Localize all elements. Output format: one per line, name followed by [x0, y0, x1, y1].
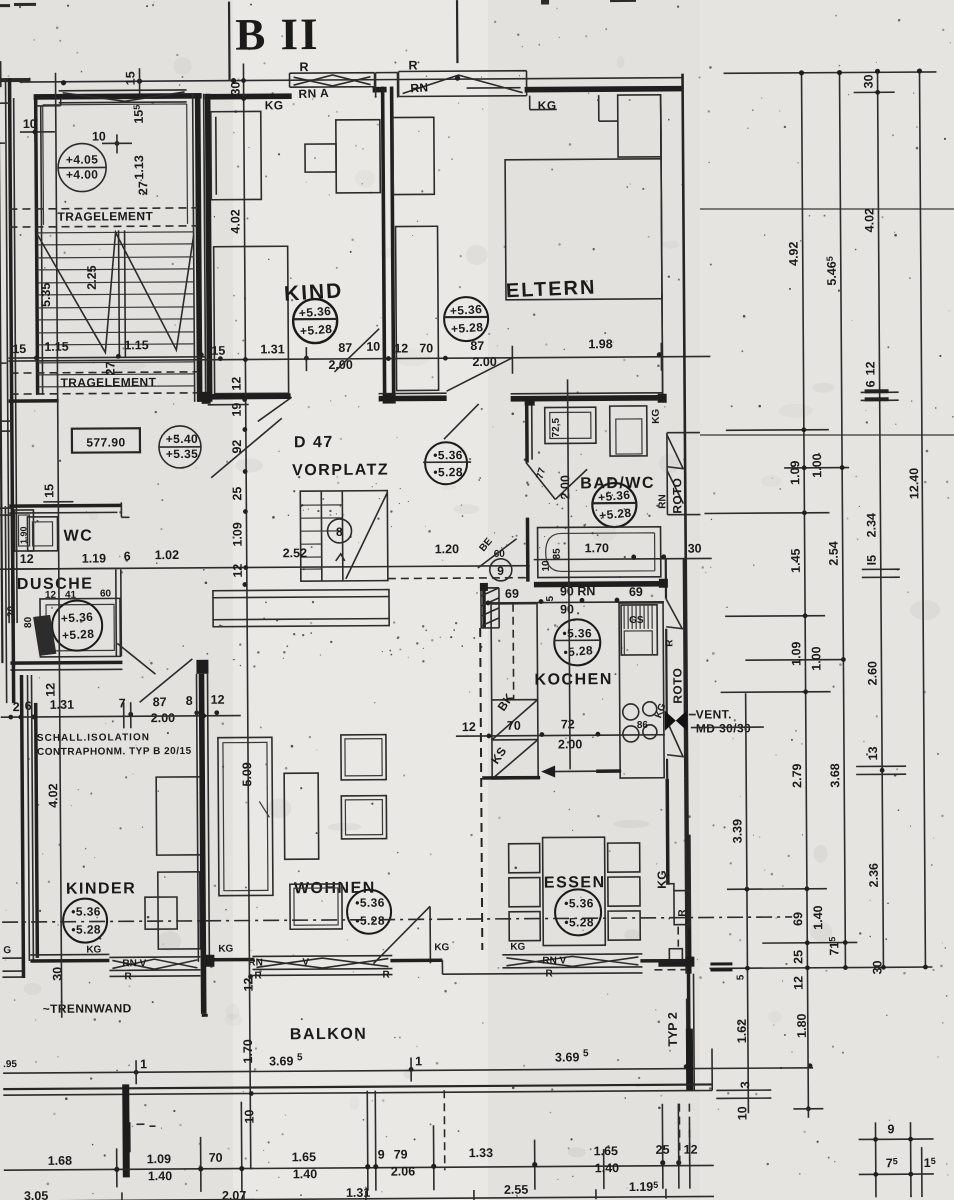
svg-text:12: 12: [462, 720, 476, 734]
svg-text:25: 25: [230, 487, 244, 501]
svg-text:R: R: [677, 909, 688, 917]
svg-text:41: 41: [65, 590, 77, 601]
svg-text:25: 25: [791, 950, 805, 964]
svg-text:2.54: 2.54: [827, 541, 841, 565]
svg-text:KG: KG: [218, 944, 233, 955]
svg-text:10: 10: [92, 129, 106, 143]
svg-text:MD 30/30: MD 30/30: [696, 721, 751, 735]
svg-text:577.90: 577.90: [86, 435, 125, 449]
svg-text:10: 10: [541, 560, 552, 572]
svg-text:•5.36: •5.36: [355, 896, 385, 910]
svg-text:+4.05: +4.05: [66, 153, 98, 167]
svg-text:12: 12: [44, 683, 58, 697]
svg-text:•5.28: •5.28: [71, 923, 101, 937]
svg-text:60: 60: [100, 588, 112, 599]
svg-text:•5.36: •5.36: [562, 626, 592, 640]
svg-text:2.79: 2.79: [790, 763, 804, 787]
svg-text:1.20: 1.20: [435, 542, 459, 556]
svg-text:10: 10: [366, 340, 380, 354]
svg-text:5: 5: [583, 1048, 589, 1059]
svg-text:D 47: D 47: [294, 434, 334, 451]
svg-text:1.45: 1.45: [789, 548, 803, 572]
svg-text:1.70: 1.70: [585, 541, 609, 555]
svg-text:90 RN: 90 RN: [560, 584, 596, 598]
svg-text:87: 87: [338, 341, 352, 355]
svg-text:G: G: [3, 945, 11, 956]
svg-text:1.00: 1.00: [810, 453, 824, 477]
svg-text:ROTO: ROTO: [670, 478, 684, 514]
svg-text:1.65: 1.65: [594, 1144, 618, 1158]
svg-text:2.00: 2.00: [151, 711, 175, 725]
svg-text:70: 70: [209, 1151, 223, 1165]
svg-text:1.00: 1.00: [809, 646, 823, 670]
svg-text:1.13: 1.13: [132, 155, 146, 179]
svg-text:1.09: 1.09: [789, 641, 803, 665]
svg-text:BALKON: BALKON: [290, 1026, 368, 1044]
svg-text:KOCHEN: KOCHEN: [534, 671, 612, 689]
svg-text:KG: KG: [86, 944, 101, 955]
svg-text:69: 69: [629, 585, 643, 599]
svg-text:VORPLATZ: VORPLATZ: [292, 462, 389, 480]
svg-text:69: 69: [791, 912, 805, 926]
svg-text:RN V: RN V: [542, 955, 566, 966]
svg-text:+5.36: +5.36: [60, 610, 93, 626]
svg-text:2.00: 2.00: [558, 475, 572, 499]
svg-text:2.52: 2.52: [283, 546, 307, 560]
svg-text:VENT.: VENT.: [696, 707, 732, 721]
svg-text:12: 12: [231, 564, 245, 578]
svg-text:15: 15: [42, 484, 56, 498]
svg-text:87: 87: [153, 695, 167, 709]
svg-text:KG: KG: [265, 98, 284, 112]
svg-text:3.39: 3.39: [730, 819, 744, 843]
svg-text:•5.28: •5.28: [563, 643, 594, 659]
svg-text:2: 2: [13, 700, 20, 714]
svg-text:+5.36: +5.36: [449, 302, 482, 318]
svg-text:1.09: 1.09: [147, 1152, 171, 1166]
svg-text:•5.36: •5.36: [71, 905, 101, 919]
svg-text:TRAGELEMENT: TRAGELEMENT: [57, 209, 153, 224]
svg-text:6: 6: [864, 380, 878, 387]
svg-text:12: 12: [230, 377, 244, 391]
svg-text:25: 25: [656, 1143, 670, 1157]
svg-text:1.40: 1.40: [293, 1167, 317, 1181]
svg-text:2.25: 2.25: [85, 265, 99, 289]
svg-text:KIND: KIND: [283, 279, 344, 305]
svg-text:+5.28: +5.28: [299, 322, 332, 338]
svg-text:12.40: 12.40: [907, 468, 921, 499]
svg-text:86: 86: [637, 720, 649, 731]
svg-text:1.31: 1.31: [260, 342, 284, 356]
svg-text:7: 7: [119, 696, 126, 710]
svg-text:+5.40: +5.40: [166, 432, 198, 446]
svg-text:KG: KG: [510, 942, 525, 953]
svg-text:1.02: 1.02: [155, 548, 179, 562]
svg-text:TYP 2: TYP 2: [666, 1012, 680, 1047]
svg-text:5.35: 5.35: [39, 283, 53, 307]
svg-text:3.68: 3.68: [828, 763, 842, 787]
svg-text:3.69: 3.69: [555, 1050, 579, 1064]
svg-text:•5.36: •5.36: [564, 896, 594, 910]
svg-text:72,5: 72,5: [551, 418, 562, 438]
svg-text:1.15: 1.15: [124, 338, 148, 352]
svg-text:WC: WC: [64, 528, 94, 545]
svg-text:4.02: 4.02: [228, 209, 242, 233]
svg-text:1.40: 1.40: [595, 1161, 619, 1175]
svg-text:12: 12: [792, 976, 806, 990]
svg-text:30: 30: [50, 967, 64, 981]
svg-text:8: 8: [186, 694, 193, 708]
svg-text:1.09: 1.09: [230, 522, 244, 546]
svg-text:KG: KG: [651, 409, 662, 424]
svg-text:79: 79: [394, 1147, 408, 1161]
svg-text:3: 3: [738, 1081, 752, 1088]
svg-text:~TRENNWAND: ~TRENNWAND: [43, 1001, 132, 1016]
svg-text:2.06: 2.06: [391, 1164, 415, 1178]
svg-text:12: 12: [45, 590, 57, 601]
svg-text:1.68: 1.68: [48, 1154, 72, 1168]
svg-text:13: 13: [866, 746, 880, 760]
svg-text:KINDER: KINDER: [66, 880, 136, 897]
svg-text:9: 9: [887, 1122, 894, 1136]
svg-text:19: 19: [230, 403, 244, 417]
svg-text:R: R: [382, 970, 390, 981]
svg-text:RN V: RN V: [122, 958, 146, 969]
svg-text:2.60: 2.60: [865, 661, 879, 685]
svg-text:12: 12: [394, 341, 408, 355]
svg-text:R: R: [545, 969, 553, 980]
svg-text:V: V: [302, 957, 309, 968]
svg-text:Ι5: Ι5: [865, 555, 879, 566]
svg-text:12: 12: [863, 361, 877, 375]
svg-text:+5.35: +5.35: [166, 447, 198, 461]
svg-text:RN: RN: [657, 494, 668, 509]
svg-text:1: 1: [415, 1054, 422, 1068]
svg-text:KG: KG: [434, 942, 449, 953]
svg-text:10: 10: [242, 1110, 256, 1124]
svg-text:15: 15: [123, 71, 137, 85]
svg-text:4.92: 4.92: [787, 241, 801, 265]
svg-text:1.09: 1.09: [788, 460, 802, 484]
svg-text:1.65: 1.65: [292, 1150, 316, 1164]
svg-text:1.80: 1.80: [795, 1013, 809, 1037]
svg-text:•5.28: •5.28: [355, 914, 385, 928]
svg-text:3.05: 3.05: [24, 1189, 48, 1200]
svg-text:69: 69: [505, 587, 519, 601]
svg-text:KG: KG: [538, 98, 557, 112]
svg-text:9: 9: [378, 1148, 385, 1162]
svg-text:GS: GS: [629, 615, 644, 626]
svg-text:30: 30: [229, 82, 243, 96]
svg-text:+5.36: +5.36: [298, 304, 331, 320]
svg-text:27: 27: [136, 181, 150, 195]
svg-text:RN A: RN A: [298, 86, 329, 101]
svg-text:80: 80: [23, 616, 34, 628]
svg-text:RN: RN: [410, 80, 429, 95]
svg-text:15: 15: [12, 342, 26, 356]
svg-text:72: 72: [561, 717, 575, 731]
svg-text:90: 90: [560, 602, 574, 616]
svg-text:12: 12: [211, 693, 225, 707]
svg-text:87: 87: [470, 339, 484, 353]
svg-text:1.33: 1.33: [469, 1146, 493, 1160]
svg-text:6: 6: [124, 549, 131, 563]
svg-text:5: 5: [297, 1052, 303, 1063]
svg-text:2.34: 2.34: [864, 513, 878, 537]
svg-text:R: R: [124, 971, 132, 982]
svg-text:•5.28: •5.28: [433, 465, 463, 479]
svg-text:15: 15: [211, 344, 225, 358]
svg-text:1: 1: [140, 1057, 147, 1071]
svg-text:1.90: 1.90: [19, 526, 29, 544]
svg-text:TRAGELEMENT: TRAGELEMENT: [61, 375, 157, 390]
svg-text:30: 30: [688, 542, 702, 556]
svg-text:+5.28: +5.28: [451, 320, 484, 336]
svg-text:70: 70: [507, 719, 521, 733]
svg-text:12: 12: [684, 1143, 698, 1157]
svg-text:70: 70: [419, 341, 433, 355]
svg-text:1.98: 1.98: [588, 337, 612, 351]
svg-text:•5.28: •5.28: [564, 915, 594, 929]
svg-text:R: R: [408, 58, 417, 72]
svg-text:2.07: 2.07: [222, 1189, 246, 1200]
svg-text:1.40: 1.40: [811, 905, 825, 929]
svg-text:+5.28: +5.28: [62, 627, 95, 643]
svg-text:•5.36: •5.36: [433, 448, 463, 462]
svg-text:ROTO: ROTO: [670, 668, 684, 704]
svg-text:8: 8: [336, 525, 343, 539]
svg-text:5.09: 5.09: [240, 762, 254, 786]
svg-text:R: R: [299, 60, 308, 74]
svg-text:30: 30: [862, 74, 876, 88]
svg-text:12: 12: [20, 552, 34, 566]
svg-text:5: 5: [545, 595, 556, 601]
svg-text:3.69: 3.69: [269, 1054, 293, 1068]
svg-text:4.02: 4.02: [46, 783, 60, 807]
svg-text:2.36: 2.36: [867, 863, 881, 887]
svg-text:9: 9: [497, 564, 504, 578]
svg-text:R: R: [254, 970, 262, 981]
svg-text:SCHALL.ISOLATION: SCHALL.ISOLATION: [37, 732, 150, 744]
svg-text:R: R: [664, 639, 675, 647]
svg-text:1.70: 1.70: [241, 1039, 255, 1063]
svg-text:+4.00: +4.00: [66, 168, 98, 182]
svg-text:B II: B II: [235, 9, 320, 60]
svg-text:92: 92: [230, 440, 244, 454]
svg-text:1.40: 1.40: [148, 1169, 172, 1183]
svg-text:.95: .95: [3, 1059, 17, 1070]
svg-text:ELTERN: ELTERN: [506, 277, 597, 303]
svg-text:85: 85: [552, 548, 563, 560]
svg-text:12: 12: [241, 978, 255, 992]
svg-text:1.31: 1.31: [50, 698, 74, 712]
svg-text:1.62: 1.62: [735, 1019, 749, 1043]
svg-text:5: 5: [735, 974, 746, 980]
svg-text:10: 10: [23, 117, 37, 131]
svg-text:1.19: 1.19: [82, 551, 106, 565]
svg-text:4.02: 4.02: [862, 208, 876, 232]
svg-text:10: 10: [735, 1106, 749, 1120]
svg-text:2.55: 2.55: [504, 1183, 528, 1197]
svg-text:27: 27: [103, 361, 117, 375]
